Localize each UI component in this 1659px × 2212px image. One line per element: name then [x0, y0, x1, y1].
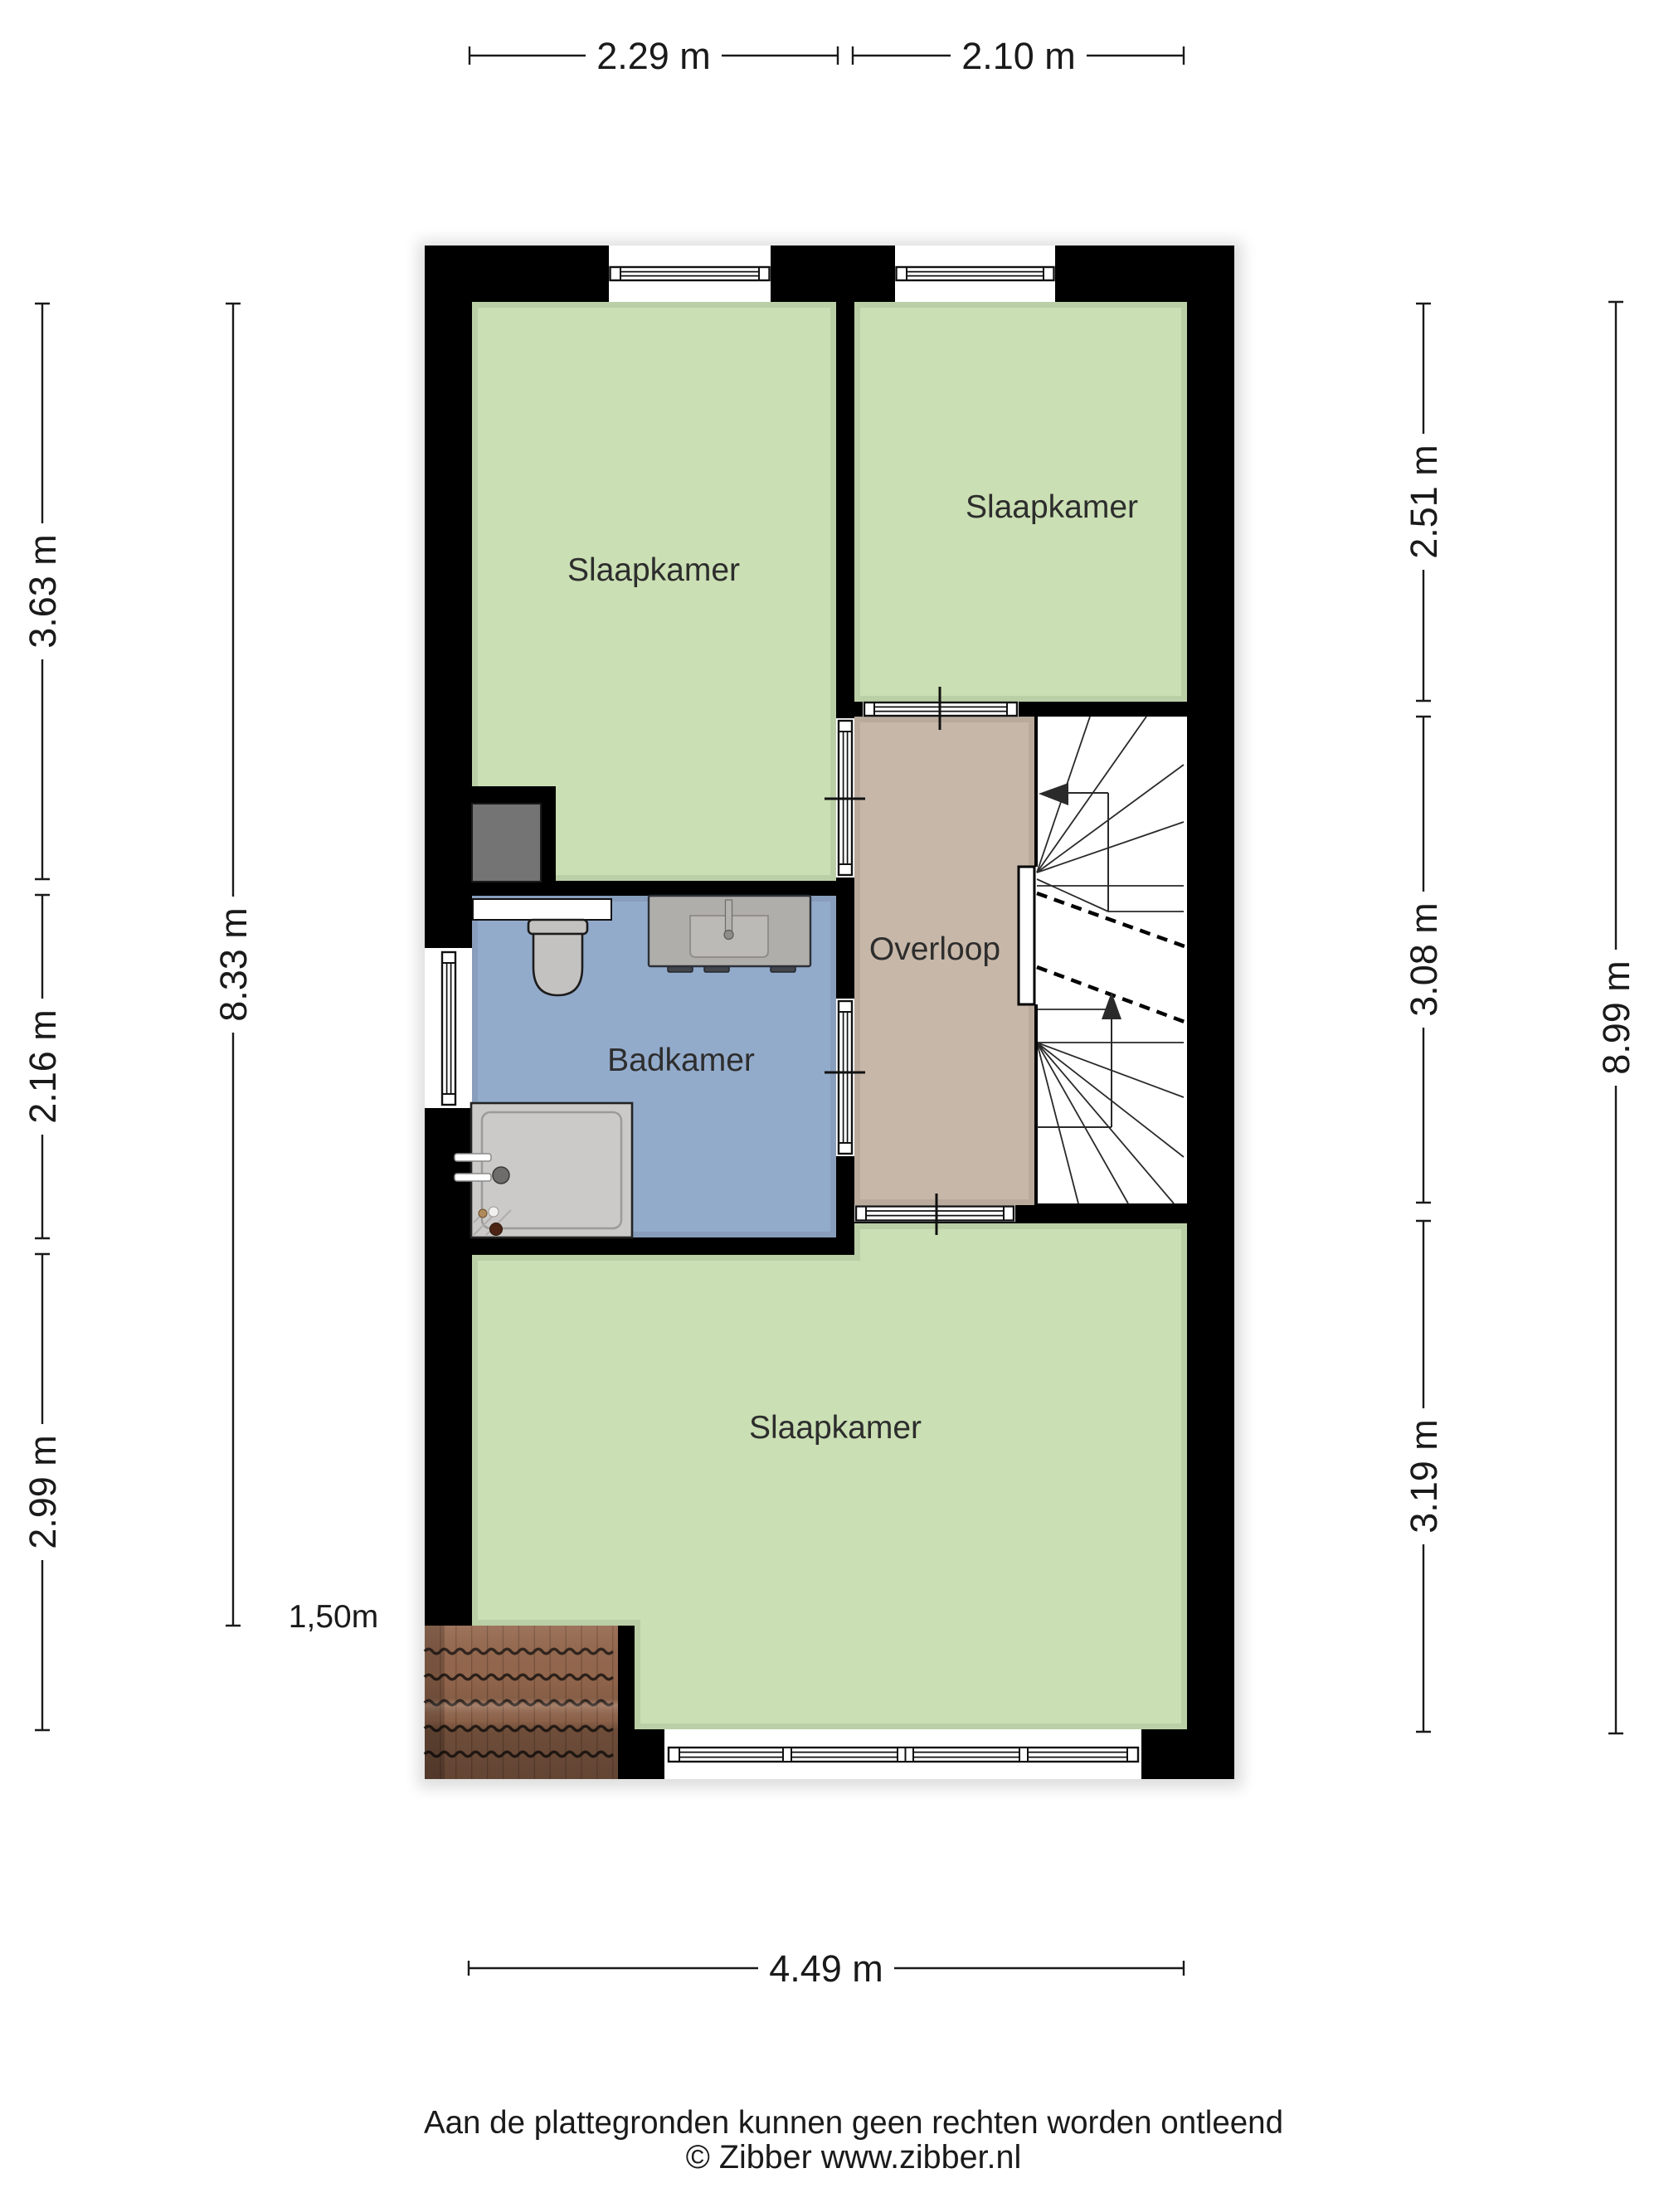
svg-text:4.49 m: 4.49 m — [769, 1947, 883, 1990]
svg-text:Slaapkamer: Slaapkamer — [749, 1410, 922, 1446]
svg-text:3.19 m: 3.19 m — [1403, 1419, 1445, 1534]
svg-text:3.08 m: 3.08 m — [1403, 902, 1445, 1017]
svg-text:2.29 m: 2.29 m — [596, 35, 711, 77]
svg-text:8.99 m: 8.99 m — [1595, 960, 1637, 1075]
svg-text:8.33 m: 8.33 m — [212, 907, 255, 1022]
svg-text:© Zibber www.zibber.nl: © Zibber www.zibber.nl — [686, 2139, 1022, 2176]
svg-text:Aan de plattegronden kunnen ge: Aan de plattegronden kunnen geen rechten… — [424, 2105, 1283, 2141]
svg-text:2.10 m: 2.10 m — [961, 35, 1076, 77]
svg-text:2.99 m: 2.99 m — [22, 1435, 64, 1549]
svg-text:2.16 m: 2.16 m — [22, 1009, 64, 1124]
svg-text:Badkamer: Badkamer — [607, 1043, 755, 1078]
svg-text:Overloop: Overloop — [869, 931, 1000, 967]
svg-text:Slaapkamer: Slaapkamer — [567, 552, 740, 588]
svg-text:Slaapkamer: Slaapkamer — [966, 489, 1138, 525]
svg-text:1,50m: 1,50m — [289, 1599, 378, 1635]
svg-text:3.63 m: 3.63 m — [22, 534, 64, 649]
svg-text:2.51 m: 2.51 m — [1403, 445, 1445, 559]
